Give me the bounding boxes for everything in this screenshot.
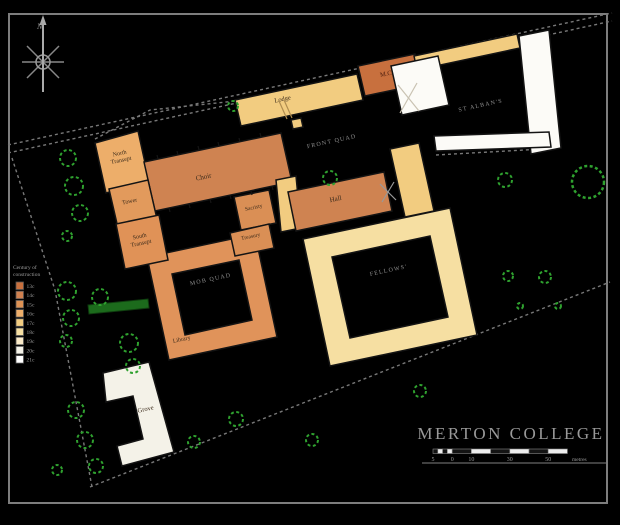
scalebar-tick-label: 50 — [545, 457, 551, 463]
scalebar-segment — [452, 449, 471, 454]
legend-label: 20c — [27, 348, 36, 354]
quad-label: ST ALBAN'S — [458, 98, 503, 113]
west-boundary — [12, 158, 92, 487]
hedge — [88, 299, 149, 314]
scalebar-tick-label: 5 — [432, 457, 435, 463]
quad-label: FRONT QUAD — [307, 134, 358, 150]
tree — [306, 434, 318, 446]
legend-swatch — [16, 356, 24, 364]
legend-swatch — [16, 310, 24, 318]
scalebar-segment — [438, 449, 443, 454]
tree — [58, 282, 76, 300]
tree — [414, 385, 426, 397]
legend-label: 18c — [27, 330, 36, 336]
scalebar-segment — [433, 449, 438, 454]
tree — [68, 402, 84, 418]
tree — [77, 432, 93, 448]
compass-north-label: N — [36, 22, 43, 31]
legend-swatch — [16, 291, 24, 299]
building-stalbans-south-range — [434, 132, 551, 151]
tree — [120, 334, 138, 352]
scalebar-segment — [443, 449, 448, 454]
tree — [503, 271, 513, 281]
legend-swatch — [16, 319, 24, 327]
legend-swatch — [16, 282, 24, 290]
legend-swatch — [16, 346, 24, 354]
tree — [555, 303, 561, 309]
building-stalbans-west-range — [391, 56, 449, 115]
tree — [539, 271, 551, 283]
century-legend: Century ofconstruction13c14c15c16c17c18c… — [13, 264, 40, 364]
tree — [62, 231, 72, 241]
buildings-layer: LibraryLodgeM.C.R.NorthTranseptChoirTowe… — [95, 30, 561, 466]
legend-label: 19c — [27, 339, 36, 345]
legend-label: 17c — [27, 321, 36, 327]
tree — [60, 335, 72, 347]
tree — [72, 205, 88, 221]
tree — [572, 166, 604, 198]
legend-title: Century of — [13, 264, 37, 271]
college-map-svg: LibraryLodgeM.C.R.NorthTranseptChoirTowe… — [0, 0, 620, 520]
tree — [89, 459, 103, 473]
street-upper-edge — [8, 13, 612, 145]
legend-title: construction — [13, 272, 40, 278]
scalebar-segment — [529, 449, 548, 454]
buttress — [260, 133, 261, 137]
tree — [60, 150, 76, 166]
legend-label: 16c — [27, 312, 36, 318]
building-east-connector — [390, 143, 434, 217]
scalebar-segment — [491, 449, 510, 454]
tree — [65, 177, 83, 195]
buttress — [189, 204, 190, 208]
buttress — [218, 142, 219, 146]
merton-college-plan: LibraryLodgeM.C.R.NorthTranseptChoirTowe… — [0, 0, 620, 520]
scalebar-segment — [510, 449, 529, 454]
chapel-yard-wall — [95, 101, 236, 139]
tree — [92, 289, 108, 305]
buttress — [198, 146, 199, 150]
tree — [188, 436, 200, 448]
tree — [498, 173, 512, 187]
legend-swatch — [16, 328, 24, 336]
buttress — [157, 155, 158, 159]
legend-label: 21c — [27, 358, 36, 364]
scalebar-segment — [471, 449, 490, 454]
map-title: MERTON COLLEGE — [417, 424, 604, 443]
tree — [517, 303, 523, 309]
legend-swatch — [16, 337, 24, 345]
tree — [229, 412, 243, 426]
legend-swatch — [16, 300, 24, 308]
legend-label: 13c — [27, 284, 36, 290]
tree — [63, 310, 79, 326]
scalebar-tick-label: 10 — [468, 457, 474, 463]
building-treasury — [230, 224, 274, 256]
scalebar-tick-label: 0 — [451, 457, 454, 463]
scalebar-segment — [548, 449, 567, 454]
title-block: MERTON COLLEGE50103050metres — [417, 424, 608, 463]
compass-rose: N — [22, 15, 64, 92]
scalebar-unit: metres — [572, 457, 587, 463]
tree — [52, 465, 62, 475]
legend-label: 15c — [27, 302, 36, 308]
legend-label: 14c — [27, 293, 36, 299]
building-gate-notch — [291, 118, 303, 129]
scalebar-segment — [447, 449, 452, 454]
scalebar-tick-label: 30 — [507, 457, 513, 463]
